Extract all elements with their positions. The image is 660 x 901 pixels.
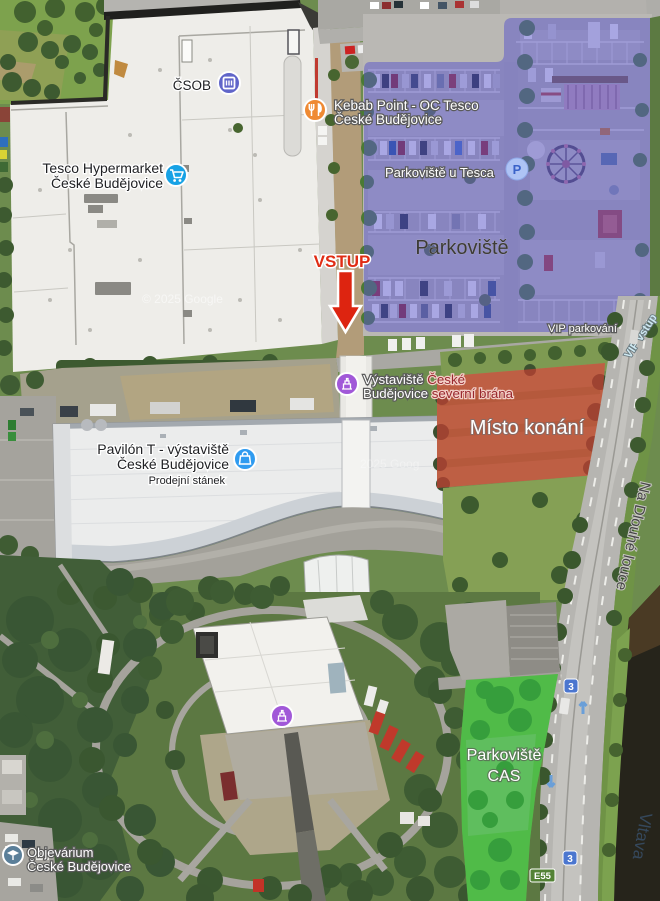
svg-text:České Budějovice: České Budějovice bbox=[334, 112, 442, 127]
svg-text:© 2025 Google: © 2025 Google bbox=[142, 292, 223, 306]
svg-text:Výstaviště České: Výstaviště České bbox=[363, 372, 465, 387]
svg-text:České Budějovice: České Budějovice bbox=[51, 175, 163, 191]
svg-text:Parkoviště u Tesca: Parkoviště u Tesca bbox=[385, 165, 495, 180]
svg-text:P: P bbox=[513, 162, 522, 177]
svg-text:České Budějovice: České Budějovice bbox=[27, 859, 131, 874]
svg-text:E55: E55 bbox=[534, 871, 552, 882]
svg-text:Parkoviště: Parkoviště bbox=[467, 747, 542, 764]
svg-text:Kebab Point - OC Tesco: Kebab Point - OC Tesco bbox=[334, 98, 479, 113]
svg-text:Parkoviště: Parkoviště bbox=[415, 237, 508, 259]
svg-text:Pavilón T - výstaviště: Pavilón T - výstaviště bbox=[97, 441, 229, 457]
svg-text:České Budějovice: České Budějovice bbox=[117, 456, 229, 472]
svg-text:2025 Goog: 2025 Goog bbox=[360, 457, 419, 471]
svg-text:Tesco Hypermarket: Tesco Hypermarket bbox=[42, 160, 163, 176]
svg-text:VSTUP: VSTUP bbox=[314, 252, 371, 271]
svg-text:ČSOB: ČSOB bbox=[173, 78, 211, 93]
svg-text:Místo konání: Místo konání bbox=[470, 417, 585, 439]
svg-text:VIP parkování: VIP parkování bbox=[548, 323, 617, 335]
svg-text:Prodejní stánek: Prodejní stánek bbox=[149, 475, 226, 487]
svg-text:Budějovice severní brána: Budějovice severní brána bbox=[363, 386, 514, 401]
svg-text:CAS: CAS bbox=[488, 768, 521, 785]
svg-text:Objevárium: Objevárium bbox=[27, 845, 93, 860]
svg-text:3: 3 bbox=[567, 854, 573, 865]
svg-text:3: 3 bbox=[568, 682, 574, 693]
